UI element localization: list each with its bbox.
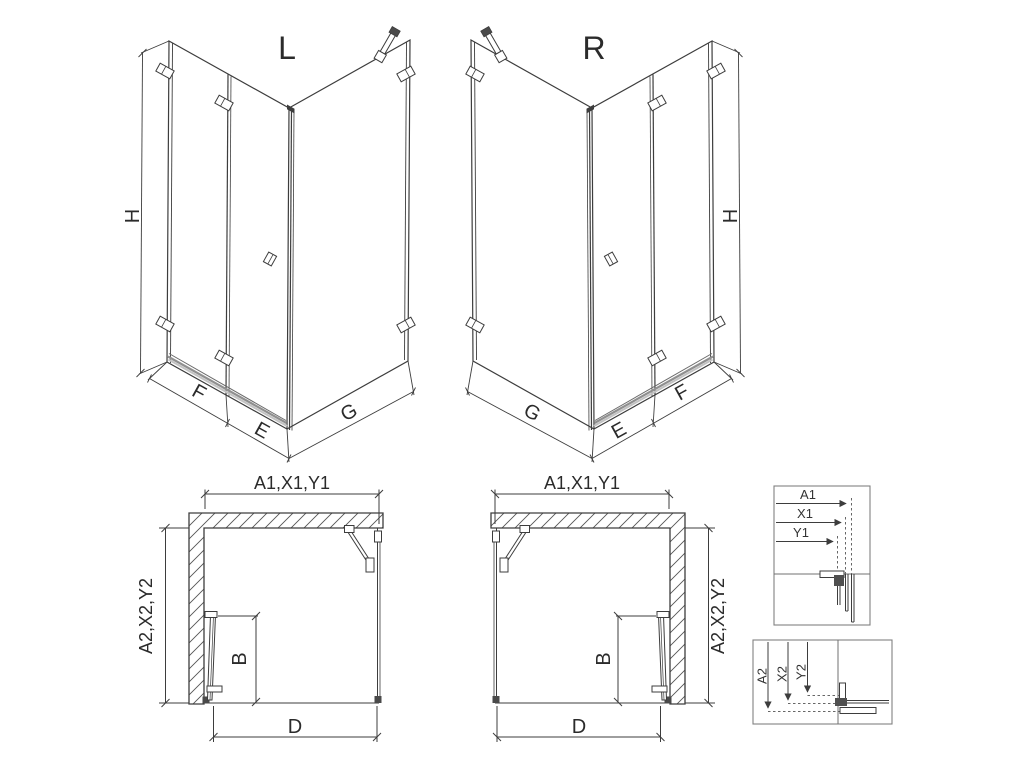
detail-view-width: A1 X1 Y1	[774, 486, 870, 625]
shower-enclosure-dimension-drawing: L H F E G R H F E G A1,X1,Y1 A2,X2,Y2 B …	[0, 0, 1024, 768]
diagram-canvas: L H F E G R H F E G A1,X1,Y1 A2,X2,Y2 B …	[0, 0, 1024, 768]
plan-right-width-label: A1,X1,Y1	[544, 473, 620, 493]
plan-left-width-label: A1,X1,Y1	[254, 473, 330, 493]
plan-right-door-label: B	[593, 652, 615, 665]
detail-width-x1-label: X1	[797, 506, 813, 521]
plan-view-left: A1,X1,Y1 A2,X2,Y2 B D	[136, 473, 383, 742]
plan-left-door-label: B	[229, 652, 251, 665]
detail-width-y1-label: Y1	[793, 525, 809, 540]
dim-label-g-right: G	[520, 399, 544, 426]
variant-label-right: R	[582, 30, 605, 66]
iso-left-geometry	[137, 27, 416, 463]
plan-left-entry-label: D	[288, 716, 302, 738]
plan-left-depth-label: A2,X2,Y2	[136, 578, 156, 654]
detail-view-depth: A2 X2 Y2	[753, 640, 892, 724]
iso-right-geometry	[466, 27, 745, 463]
detail-width-a1-label: A1	[800, 487, 816, 502]
detail-depth-y2-label: Y2	[794, 664, 809, 680]
detail-depth-a2-label: A2	[755, 668, 770, 684]
dim-label-e-left: E	[251, 418, 273, 444]
detail-depth-x2-label: X2	[775, 666, 790, 682]
dim-label-f-right: F	[671, 380, 692, 405]
dim-label-g-left: G	[337, 399, 361, 426]
dim-label-f-left: F	[188, 380, 209, 405]
plan-view-right: A1,X1,Y1 A2,X2,Y2 B D	[491, 473, 728, 742]
variant-label-left: L	[278, 30, 296, 66]
iso-view-left: L H F E G	[122, 27, 416, 463]
iso-view-right: R H F E G	[466, 27, 745, 463]
dim-label-e-right: E	[608, 418, 630, 444]
dim-label-h-right: H	[720, 209, 742, 223]
dim-label-h-left: H	[122, 209, 144, 223]
plan-right-geometry	[491, 490, 715, 743]
plan-right-depth-label: A2,X2,Y2	[708, 578, 728, 654]
plan-right-entry-label: D	[572, 716, 586, 738]
plan-left-geometry	[159, 490, 383, 743]
